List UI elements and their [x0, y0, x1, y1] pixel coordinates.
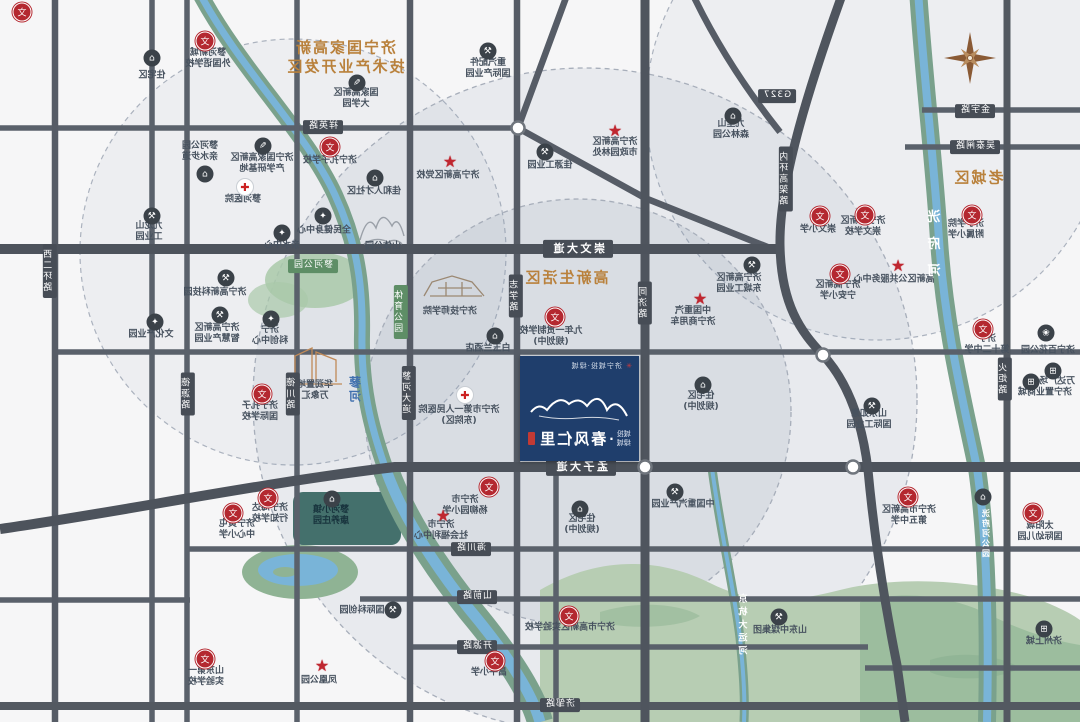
school-icon: 文 [321, 138, 340, 157]
poi-icon: ✦ [315, 208, 332, 225]
poi-icon: ✦ [147, 314, 164, 331]
school-icon: 文 [196, 650, 215, 669]
poi-icon: ⌂ [367, 170, 384, 187]
school-icon: 文 [856, 206, 875, 225]
school-icon: 文 [13, 3, 32, 22]
river-label: 蓼河 [347, 376, 364, 404]
poi-label: 山东中煤集团 [753, 625, 807, 636]
poi-label: 济宁黄屯中心小学 [219, 519, 255, 542]
poi-icon: ⌂ [975, 489, 992, 506]
poi-label: 济宁科创中心 [252, 325, 288, 348]
poi-label: 华润置地万象汇 [297, 380, 333, 403]
school-icon: 文 [259, 489, 278, 508]
poi-icon: ⚒ [144, 208, 161, 225]
road-badge: 海川路 [451, 542, 491, 556]
poi-label: 蓼河医院 [225, 194, 261, 205]
separator-dot: · [609, 432, 614, 446]
road-badge: 山前路 [457, 590, 497, 604]
mountain-sketch [360, 217, 404, 244]
poi-label: 高新区公共服务中心 [853, 274, 934, 285]
road-badge: 济邹路 [540, 698, 580, 712]
school-icon: 文 [974, 320, 993, 339]
brand-mark-icon: ✳ [625, 362, 632, 370]
project-name-row: 城投绿城 · 春风仁里 [520, 428, 639, 449]
poi-label: 凤凰公园 [301, 675, 337, 686]
school-icon: 文 [560, 607, 579, 626]
road-badge: 祥英路 [303, 120, 343, 134]
road-badge: 金宇路 [955, 104, 995, 118]
zone-title: 高新生活区 [523, 269, 608, 288]
school-icon: 文 [196, 32, 215, 51]
poi-label: 崇文小学 [800, 224, 836, 235]
poi-icon: ⌂ [572, 501, 589, 518]
road-badge: 德川路 [286, 373, 300, 416]
project-logo-group: ✳ 济宁城投·绿城 城投绿城 · 春风仁里 [520, 356, 639, 461]
school-icon: 文 [963, 206, 982, 225]
poi-label: 济宁技师学院 [423, 306, 477, 317]
poi-label: 佳和人才社区 [347, 186, 401, 197]
road-badge: G327 [758, 89, 796, 103]
poi-label: 济宁市第一人民医院(东院区) [418, 405, 499, 428]
road-badge: 体育公园 [394, 285, 408, 339]
star-icon: ★ [315, 658, 329, 674]
road-badge: 崇文大道 [543, 240, 613, 258]
project-name: 春风仁里 [538, 428, 606, 449]
road-badge: 同济路 [638, 282, 652, 325]
poi-label: 济宁百花公园 [1021, 345, 1075, 356]
poi-label: 中国重汽济宁商用车 [670, 306, 715, 329]
poi-label: 蓼河新城外国语学校 [185, 48, 230, 71]
poi-icon: ✦ [263, 311, 280, 328]
poi-label: 山体公园 [365, 241, 401, 252]
mountain-logo-art [520, 382, 639, 426]
poi-label: 佳源工业园 [527, 160, 572, 171]
school-icon: 文 [899, 488, 918, 507]
poi-label: 济宁孔子国际学校 [242, 401, 278, 424]
location-map: ✳ 济宁城投·绿城 城投绿城 · 春风仁里 济宁国家高新技术产业开发区高新生活区… [0, 0, 1080, 722]
school-icon: 文 [486, 652, 505, 671]
school-icon: 文 [811, 207, 830, 226]
poi-icon: ✎ [255, 138, 272, 155]
poi-icon: ❀ [1038, 325, 1055, 342]
poi-label: 文化产业园 [128, 329, 173, 340]
poi-icon: ⚒ [480, 43, 497, 60]
road-badge: 蓼河大道 [402, 366, 416, 420]
star-icon: ★ [443, 154, 457, 170]
poi-icon: ⚒ [744, 257, 761, 274]
star-icon: ★ [608, 123, 622, 139]
star-icon: ★ [436, 508, 450, 524]
poi-icon: ✎ [349, 75, 366, 92]
poi-icon: ⊞ [1023, 374, 1040, 391]
project-brand-line: ✳ 济宁城投·绿城 [571, 361, 632, 371]
poi-label: 亲水中心 [264, 240, 300, 251]
poi-icon: ⚒ [864, 398, 881, 415]
project-parcel: ✳ 济宁城投·绿城 城投绿城 · 春风仁里 [520, 356, 639, 461]
poi-label: 济宁高新区智慧产业园 [194, 323, 239, 346]
star-icon: ★ [693, 291, 707, 307]
developer-prefix: 城投绿城 [617, 430, 631, 446]
poi-label: 济州上城 [1026, 636, 1062, 647]
poi-label: 中国重汽产业园 [651, 499, 714, 510]
poi-icon: ⌂ [197, 166, 214, 183]
poi-icon: ⊞ [1045, 363, 1062, 380]
school-icon: 文 [253, 385, 272, 404]
poi-icon: ✦ [274, 225, 291, 242]
poi-label: 九年一贯制学校(规划中) [519, 326, 582, 349]
poi-label: 蓼河公园亲水步道 [182, 141, 218, 164]
school-icon: 文 [480, 478, 499, 497]
poi-icon: ⊞ [1036, 621, 1053, 638]
poi-label: 住宅区(规划中) [683, 391, 718, 414]
poi-label: 住宅区 [138, 70, 165, 81]
zone-title: 济宁国家高新技术产业开发区 [285, 38, 404, 76]
poi-label: 济宁国家高新区产学研基地 [230, 153, 293, 176]
poi-icon: ⚒ [385, 602, 402, 619]
road-badge: 吴泰闸路 [950, 140, 1000, 154]
poi-label: 重汽配件国际产业园 [465, 58, 510, 81]
hospital-icon: ✚ [456, 386, 474, 404]
zone-title: 老城区 [952, 169, 1003, 188]
poi-icon: ⚒ [537, 144, 554, 161]
poi-icon: ⌂ [725, 108, 742, 125]
hospital-icon: ✚ [236, 178, 254, 196]
river-label: 京杭大运河 [738, 594, 751, 659]
poi-icon: ⌂ [324, 491, 341, 508]
poi-label: 济宁高新区市政园林处 [592, 137, 637, 160]
school-icon: 文 [224, 504, 243, 523]
poi-label: 全民健身中心 [297, 225, 351, 236]
poi-icon: ⌂ [695, 377, 712, 394]
poi-label: 蓼河小镇康养庄园 [313, 505, 349, 528]
school-icon: 文 [546, 308, 565, 327]
poi-label: 济宁市高新区第五中学 [882, 505, 936, 528]
poi-icon: ⚒ [212, 307, 229, 324]
poi-label: 太阳城国际幼儿园 [1017, 521, 1062, 544]
river-label: 洸府河公园 [981, 509, 992, 559]
school-icon: 文 [831, 265, 850, 284]
red-seal-icon [528, 432, 535, 445]
poi-icon: ⚒ [667, 484, 684, 501]
poi-label: 山东第一实验学校 [188, 666, 224, 689]
poi-label: 济宁高新区党校 [416, 170, 479, 181]
star-icon: ★ [891, 258, 905, 274]
road-badge: 志学路 [509, 275, 523, 318]
poi-label: 济宁孔子学校 [303, 155, 357, 166]
poi-label: 白玉兰酒店 [465, 343, 510, 354]
poi-icon: ⌂ [144, 50, 161, 67]
road-badge: 蓼河公园 [288, 259, 338, 273]
poi-icon: ⚒ [771, 609, 788, 626]
road-badge: 西二环路 [43, 244, 57, 298]
poi-label: 济宁高新区东城工业园 [716, 273, 761, 296]
poi-label: 国际科创园 [339, 605, 384, 616]
college-sketch [424, 276, 484, 296]
poi-label: 济宁高新科技园 [183, 287, 246, 298]
road-badge: 内环高架路 [779, 147, 793, 212]
road-badge: 火炬路 [998, 358, 1012, 401]
poi-icon: ⚒ [218, 270, 235, 287]
poi-icon: ⌂ [487, 328, 504, 345]
river-label: 洸府河 [927, 210, 946, 291]
school-icon: 文 [1024, 504, 1043, 523]
road-badge: 德源路 [181, 373, 195, 416]
